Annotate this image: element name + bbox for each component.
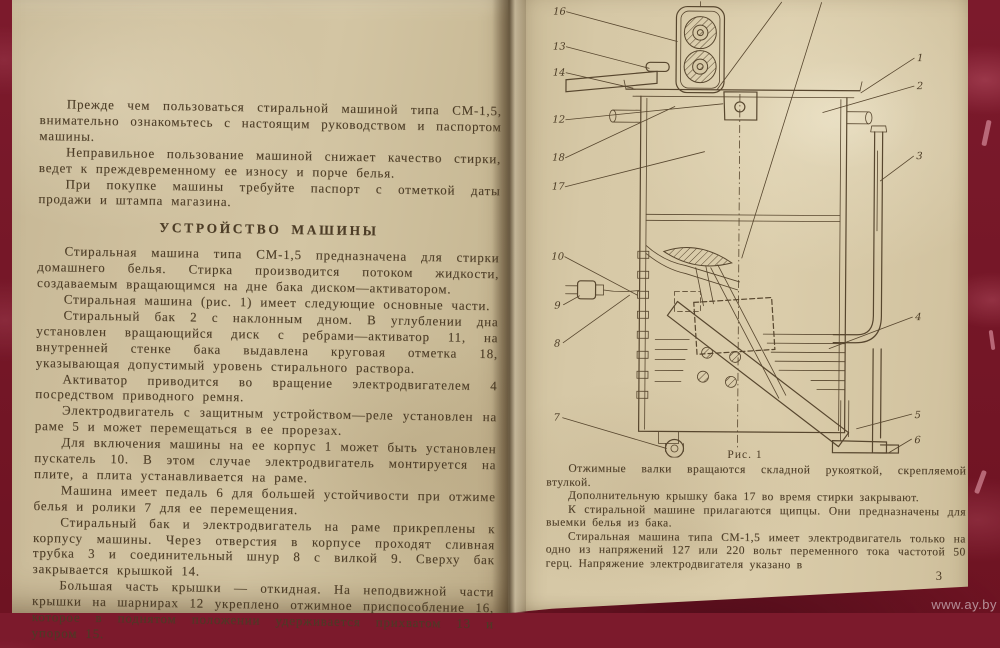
paragraph: Отжимные валки вращаются складной рукоят… [546, 463, 966, 493]
paragraph: Прежде чем пользоваться стиральной машин… [39, 96, 502, 151]
fabric-streak [974, 470, 987, 494]
machine-body [607, 93, 872, 451]
figure-callout-9: 9 [554, 301, 561, 312]
washing-machine-figure: 16 13 14 12 18 17 10 9 8 7 1 2 3 4 5 6 [526, 0, 969, 460]
page-number: 3 [918, 569, 942, 584]
wringer-rollers [676, 1, 758, 120]
figure-callout-5: 5 [914, 410, 920, 421]
paragraph: К стиральной машине прилагаются щипцы. О… [546, 503, 966, 533]
callout-lines [562, 1, 914, 453]
figure-callout-4: 4 [914, 312, 921, 323]
figure-callout-13: 13 [553, 42, 566, 53]
figure-callout-16: 16 [553, 7, 566, 18]
drain-tube [832, 126, 900, 453]
figure-callout-17: 17 [552, 182, 565, 193]
right-page-text: Отжимные валки вращаются складной рукоят… [546, 463, 967, 574]
figure-callout-18: 18 [552, 153, 565, 164]
figure-callout-10: 10 [551, 252, 564, 263]
fabric-streak [981, 120, 991, 146]
caster-roller [658, 431, 683, 457]
paragraph: Стиральная машина типа СМ-1,5 имеет элек… [546, 530, 966, 573]
figure-callout-14: 14 [553, 68, 566, 79]
pedal [832, 401, 886, 453]
figure-callout-1: 1 [917, 53, 923, 64]
section-heading: УСТРОЙСТВО МАШИНЫ [38, 218, 500, 241]
figure-callout-7: 7 [553, 413, 560, 424]
figure-callout-6: 6 [914, 435, 921, 446]
paragraph: При покупке машины требуйте паспорт с от… [38, 176, 500, 215]
paragraph: Стиральная машина типа СМ-1,5 предназнач… [37, 243, 500, 298]
folding-handle [566, 62, 669, 93]
figure-callout-3: 3 [916, 151, 922, 162]
figure-caption: Рис. 1 [700, 449, 790, 461]
paragraph: Стиральный бак и электродвигатель на рам… [32, 514, 495, 585]
tank-lid [624, 80, 862, 98]
photo-of-open-manual: { "book": { "left_page": { "intro_paragr… [0, 0, 1000, 613]
fabric-streak [989, 330, 996, 350]
left-page-text: Прежде чем пользоваться стиральной машин… [31, 96, 502, 648]
figure-callout-2: 2 [916, 81, 923, 92]
paragraph: Для включения машины на ее корпус 1 може… [34, 434, 497, 489]
figure-callout-12: 12 [552, 115, 565, 126]
paragraph: Стиральный бак 2 с наклонным дном. В угл… [36, 307, 499, 378]
watermark: www.ay.by [931, 597, 997, 612]
power-plug [566, 281, 640, 300]
motor-and-frame [654, 264, 849, 446]
figure-callout-8: 8 [554, 339, 560, 350]
